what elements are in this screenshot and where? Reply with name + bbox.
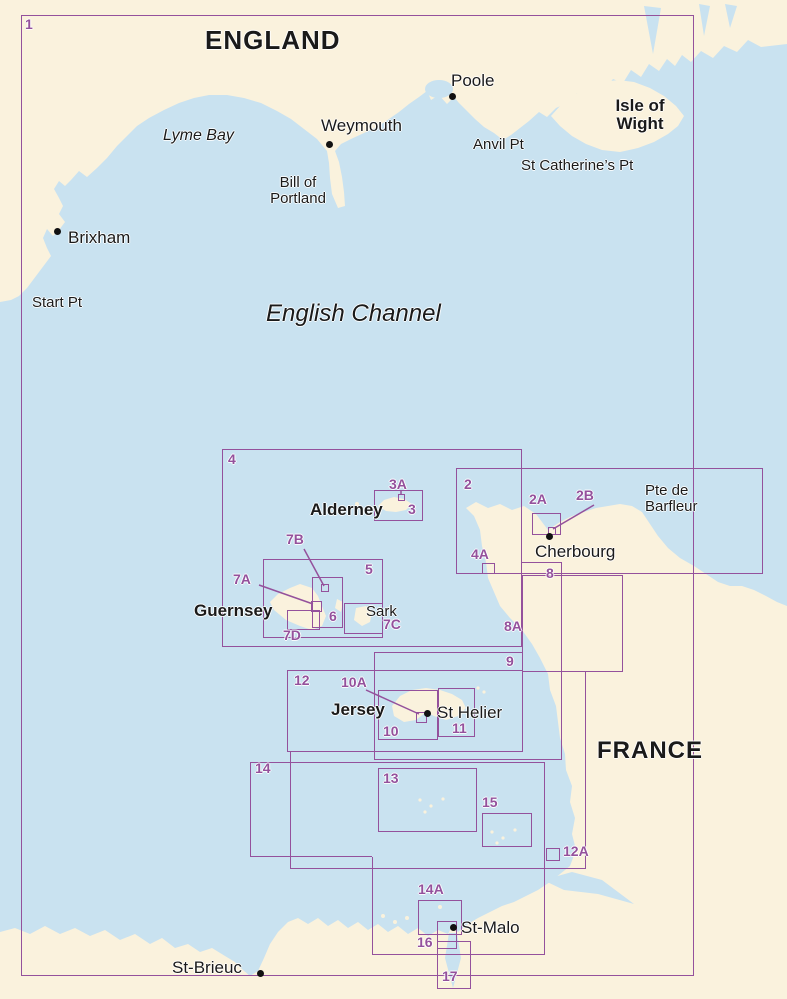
chart-label-7d: 7D	[283, 628, 301, 643]
chart-label-2: 2	[464, 477, 472, 492]
chart-box-12a	[546, 848, 560, 861]
st-brieuc-dot	[257, 970, 264, 977]
guernsey-label: Guernsey	[194, 602, 272, 620]
chart-label-7c: 7C	[383, 617, 401, 632]
chart-box-9-notch	[522, 562, 562, 760]
chart-label-16: 16	[417, 935, 433, 950]
chart-label-5: 5	[365, 562, 373, 577]
bill-of-portland-label: Bill of Portland	[262, 175, 334, 207]
cherbourg-dot	[546, 533, 553, 540]
chart-label-8a: 8A	[504, 619, 522, 634]
st-malo-label: St-Malo	[461, 919, 520, 937]
cherbourg-label: Cherbourg	[535, 543, 615, 561]
chart-box-15	[482, 813, 532, 847]
isle-of-wight-label: Isle of Wight	[598, 97, 682, 133]
st-brieuc-label: St-Brieuc	[172, 959, 242, 977]
chart-label-7a: 7A	[233, 572, 251, 587]
st-catherines-pt-label: St Catherine’s Pt	[521, 158, 633, 174]
chart-box-2a	[532, 513, 561, 535]
chart-box-12-extension-east-edge	[585, 672, 586, 869]
anvil-pt-label: Anvil Pt	[473, 137, 524, 153]
lyme-bay-label: Lyme Bay	[163, 128, 234, 145]
brixham-label: Brixham	[68, 229, 130, 247]
alderney-label: Alderney	[310, 501, 383, 519]
chart-label-15: 15	[482, 795, 498, 810]
poole-dot	[449, 93, 456, 100]
chart-label-12: 12	[294, 673, 310, 688]
pte-de-barfleur-label: Pte de Barfleur	[645, 483, 698, 515]
chart-label-8: 8	[546, 566, 554, 581]
france-label: FRANCE	[597, 738, 703, 763]
chart-label-6: 6	[329, 609, 337, 624]
chart-label-7b: 7B	[286, 532, 304, 547]
chart-label-9: 9	[506, 654, 514, 669]
chart-label-4a: 4A	[471, 547, 489, 562]
start-pt-label: Start Pt	[32, 295, 82, 311]
chart-label-10a: 10A	[341, 675, 367, 690]
brixham-dot	[54, 228, 61, 235]
chart-box-14-step-edge	[372, 857, 373, 955]
english-channel-label: English Channel	[266, 301, 441, 326]
chart-label-2b: 2B	[576, 488, 594, 503]
england-label: ENGLAND	[205, 27, 335, 54]
chart-label-12a: 12A	[563, 844, 589, 859]
st-malo-dot	[450, 924, 457, 931]
st-helier-dot	[424, 710, 431, 717]
chart-label-11: 11	[452, 721, 467, 736]
chart-label-4: 4	[228, 452, 236, 467]
weymouth-label: Weymouth	[321, 117, 402, 135]
chart-label-14a: 14A	[418, 882, 444, 897]
chart-label-3: 3	[408, 502, 416, 517]
chart-label-17: 17	[442, 969, 458, 984]
chart-index-map: ENGLAND FRANCE English Channel Lyme Bay …	[0, 0, 787, 999]
chart-box-4a	[482, 563, 495, 574]
weymouth-dot	[326, 141, 333, 148]
chart-label-1: 1	[25, 17, 33, 32]
poole-label: Poole	[451, 72, 494, 90]
chart-label-13: 13	[383, 771, 399, 786]
chart-label-3a: 3A	[389, 477, 407, 492]
chart-label-2a: 2A	[529, 492, 547, 507]
chart-box-7b	[321, 584, 329, 592]
chart-box-14-west	[250, 762, 372, 857]
chart-label-10: 10	[383, 724, 399, 739]
st-helier-label: St Helier	[437, 704, 502, 722]
jersey-label: Jersey	[331, 701, 385, 719]
chart-label-14: 14	[255, 761, 271, 776]
